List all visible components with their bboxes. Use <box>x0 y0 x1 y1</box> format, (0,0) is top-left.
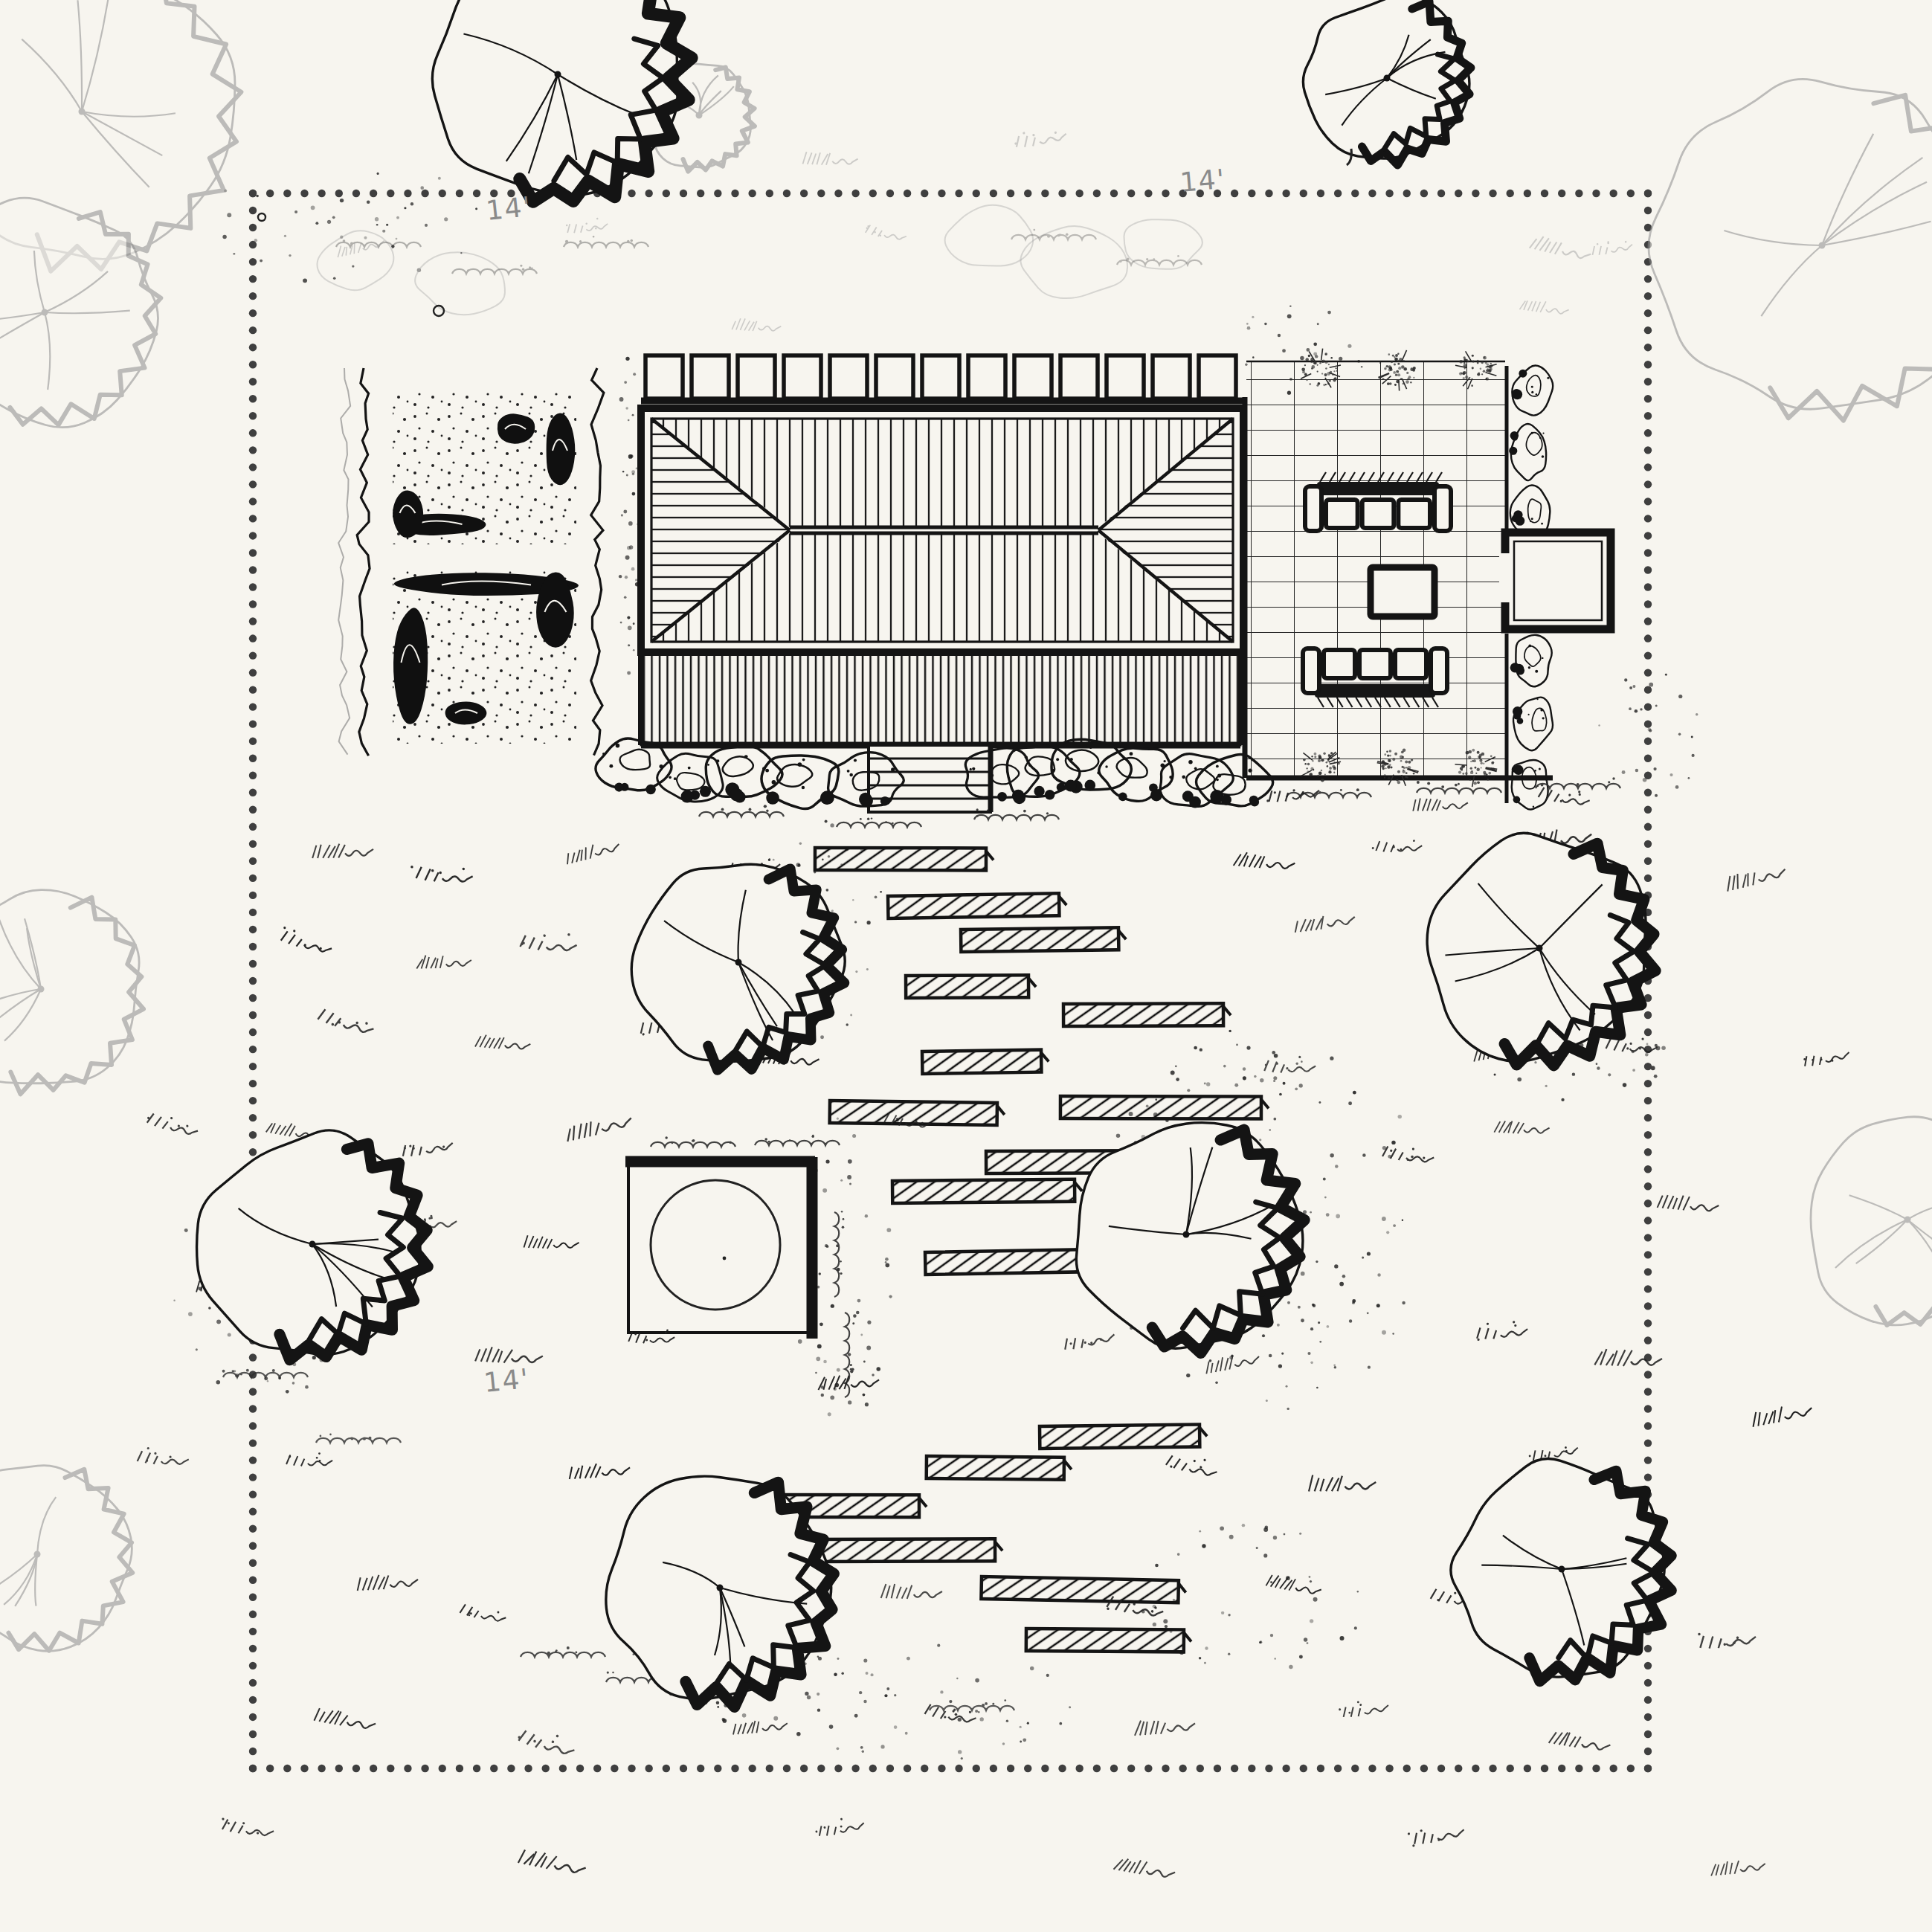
grass-tuft <box>565 216 608 234</box>
grass-tuft <box>732 318 781 332</box>
coffee-table <box>1371 567 1434 616</box>
grass-tuft <box>1658 1193 1720 1214</box>
sofa-back <box>1315 684 1435 698</box>
paved-patio <box>1245 349 1611 810</box>
stepping-stone <box>815 848 994 870</box>
tree-canopy <box>432 0 692 202</box>
grass-tuft <box>569 1462 631 1479</box>
sofa-cushion <box>1326 500 1358 528</box>
grass-tuft <box>1475 1318 1528 1342</box>
grass-tuft <box>475 1034 531 1051</box>
groundcover-row <box>834 1212 844 1297</box>
groundcover-row <box>930 1699 1014 1710</box>
hedge-shrub <box>1512 365 1553 415</box>
grass-tuft <box>1063 1328 1115 1352</box>
grass-tuft <box>564 839 621 865</box>
stipple-patch <box>796 1644 1072 1760</box>
stepping-stone <box>1063 1003 1231 1026</box>
stepping-stone <box>922 1049 1049 1074</box>
grass-tuft <box>1710 1858 1766 1876</box>
stepping-stone <box>1026 1629 1191 1652</box>
sofa-cushion <box>1324 650 1355 678</box>
grass-tuft <box>517 1726 577 1756</box>
stepping-stone <box>927 1456 1072 1480</box>
tree-canopy <box>197 1130 428 1360</box>
stepping-stone <box>906 975 1036 998</box>
tree-canopy <box>606 1476 834 1707</box>
ornamental-grass-band <box>357 368 370 756</box>
spa-enclosure <box>1499 532 1611 629</box>
faded-tree-canopy <box>0 890 144 1095</box>
house-building <box>641 355 1243 812</box>
pergola-beam <box>830 355 867 399</box>
sofa-armrest <box>1434 486 1451 531</box>
grass-tuft <box>314 1707 376 1732</box>
tree-canopy <box>1451 1458 1672 1681</box>
groundcover-row <box>564 236 648 247</box>
stipple-patch <box>222 173 477 283</box>
pergola-beam <box>876 355 913 399</box>
hedge-shrub <box>1513 698 1553 751</box>
tree-canopy <box>1427 833 1655 1065</box>
square-fountain <box>625 1157 815 1339</box>
grass-tuft <box>1591 236 1633 257</box>
stipple-patch <box>619 357 639 675</box>
grass-tuft <box>1165 1452 1219 1478</box>
pergola-beam <box>1107 355 1144 399</box>
stepping-stone <box>1060 1096 1269 1118</box>
pergola-beam <box>738 355 775 399</box>
grass-tuft <box>518 1848 587 1876</box>
deck <box>641 654 1240 745</box>
grass-tuft <box>1413 797 1468 811</box>
sofa-armrest <box>1303 648 1319 693</box>
grass-tuft <box>1204 1350 1260 1374</box>
sofa-cushion <box>1398 500 1430 528</box>
grass-tuft <box>1113 1855 1176 1880</box>
grass-tuft <box>1264 1055 1316 1073</box>
grass-tuft <box>520 931 577 951</box>
site-plan: 14'14'14' <box>0 0 1932 1932</box>
grass-tuft <box>221 1817 275 1837</box>
stepping-stone <box>1040 1424 1207 1449</box>
grass-tuft <box>1294 912 1356 933</box>
hedge-shrub <box>1509 424 1546 480</box>
faded-tree-canopy <box>0 1466 132 1652</box>
sofa-armrest <box>1305 486 1321 531</box>
grass-tuft <box>865 225 907 241</box>
grass-tuft <box>1013 124 1067 149</box>
grass-tuft <box>524 1235 579 1250</box>
grass-tuft <box>1725 863 1787 892</box>
grass-tuft <box>1407 1820 1465 1847</box>
groundcover-row <box>651 1136 735 1147</box>
patio-hedge-strip <box>1507 365 1553 541</box>
tree-canopy <box>1303 0 1471 165</box>
site-plan-canvas: 14'14'14' <box>0 0 1932 1932</box>
grass-tuft <box>1803 1046 1850 1068</box>
pergola-beam <box>645 355 683 399</box>
stepping-stone <box>961 927 1126 952</box>
grass-tuft <box>146 1112 199 1137</box>
pergola-beam <box>1153 355 1190 399</box>
sofa-cushion <box>1359 650 1391 678</box>
faint-groundcover <box>1020 226 1127 298</box>
gravel-courtyard <box>338 368 604 756</box>
dimension-annotation: 14' <box>1179 164 1227 198</box>
faint-groundcover <box>415 252 505 315</box>
stepping-stone <box>888 893 1066 918</box>
stepping-stone <box>981 1577 1186 1603</box>
groundcover-row <box>336 236 421 247</box>
grass-tuft <box>881 1584 942 1600</box>
pergola-beam <box>784 355 821 399</box>
pergola-beam <box>1199 355 1236 399</box>
dimension-annotation: 14' <box>485 191 534 226</box>
grass-tuft <box>138 1446 190 1465</box>
groundcover-row <box>316 1434 401 1443</box>
grass-tuft <box>1494 1120 1550 1135</box>
grass-tuft <box>410 866 473 883</box>
grass-tuft <box>1530 234 1592 263</box>
faint-groundcover <box>317 231 393 290</box>
pergola-beam <box>922 355 959 399</box>
grass-tuft <box>1698 1626 1756 1650</box>
sofa-cushion <box>1395 650 1426 678</box>
patio-hedge-strip <box>1507 634 1553 810</box>
stepping-stone <box>892 1179 1082 1203</box>
groundcover-row <box>699 805 784 817</box>
grass-tuft <box>312 843 373 858</box>
groundcover-row <box>755 1135 840 1145</box>
grass-tuft <box>732 1719 788 1735</box>
faded-tree-canopy <box>1649 79 1932 420</box>
grass-tuft <box>1519 298 1569 316</box>
pergola-beam <box>968 355 1005 399</box>
grass-tuft <box>1382 1145 1434 1164</box>
sofa-armrest <box>1431 648 1447 693</box>
grass-tuft <box>1134 1716 1196 1735</box>
grass-tuft <box>1234 851 1295 872</box>
stepping-stone <box>815 1539 1002 1562</box>
sofa-cushion <box>1362 500 1394 528</box>
grass-tuft <box>357 1573 419 1591</box>
grass-tuft <box>286 1452 332 1466</box>
grass-tuft <box>416 954 471 968</box>
grass-tuft <box>1338 1696 1389 1719</box>
pergola-beam <box>1014 355 1052 399</box>
small-circle-mark <box>258 213 265 221</box>
grass-tuft <box>1266 1573 1322 1597</box>
groundcover-row <box>1417 781 1501 793</box>
groundcover-row <box>452 265 537 274</box>
grass-tuft <box>475 1346 543 1365</box>
sofa-back <box>1317 482 1439 495</box>
grass-tuft <box>814 1814 865 1838</box>
dimension-annotation: 14' <box>483 1363 532 1398</box>
ornamental-grass-band <box>591 368 604 756</box>
grass-tuft <box>1751 1401 1813 1426</box>
grass-tuft <box>335 236 385 257</box>
grass-tuft <box>1594 1348 1662 1368</box>
tree-canopy <box>631 864 845 1070</box>
fountain-basin <box>628 1162 812 1333</box>
grass-tuft <box>802 152 857 166</box>
grass-tuft <box>280 927 335 955</box>
hedge-shrub <box>1510 635 1552 686</box>
faded-tree-canopy <box>1811 1117 1932 1325</box>
grass-tuft <box>460 1603 507 1623</box>
groundcover-row <box>974 808 1059 820</box>
tree-canopy <box>1076 1123 1304 1353</box>
groundcover-row <box>521 1646 605 1657</box>
grass-tuft <box>564 1112 633 1142</box>
grass-tuft <box>1549 1730 1611 1754</box>
ornamental-grass-band <box>338 368 350 755</box>
groundcover-row <box>837 817 921 827</box>
grass-tuft <box>1309 1475 1376 1491</box>
pergola-beam <box>692 355 729 399</box>
grass-tuft <box>401 1136 454 1159</box>
spa-opening <box>1499 553 1513 602</box>
grass-tuft <box>318 1008 376 1036</box>
grass-tuft <box>1371 840 1422 853</box>
pergola-beam <box>1060 355 1098 399</box>
